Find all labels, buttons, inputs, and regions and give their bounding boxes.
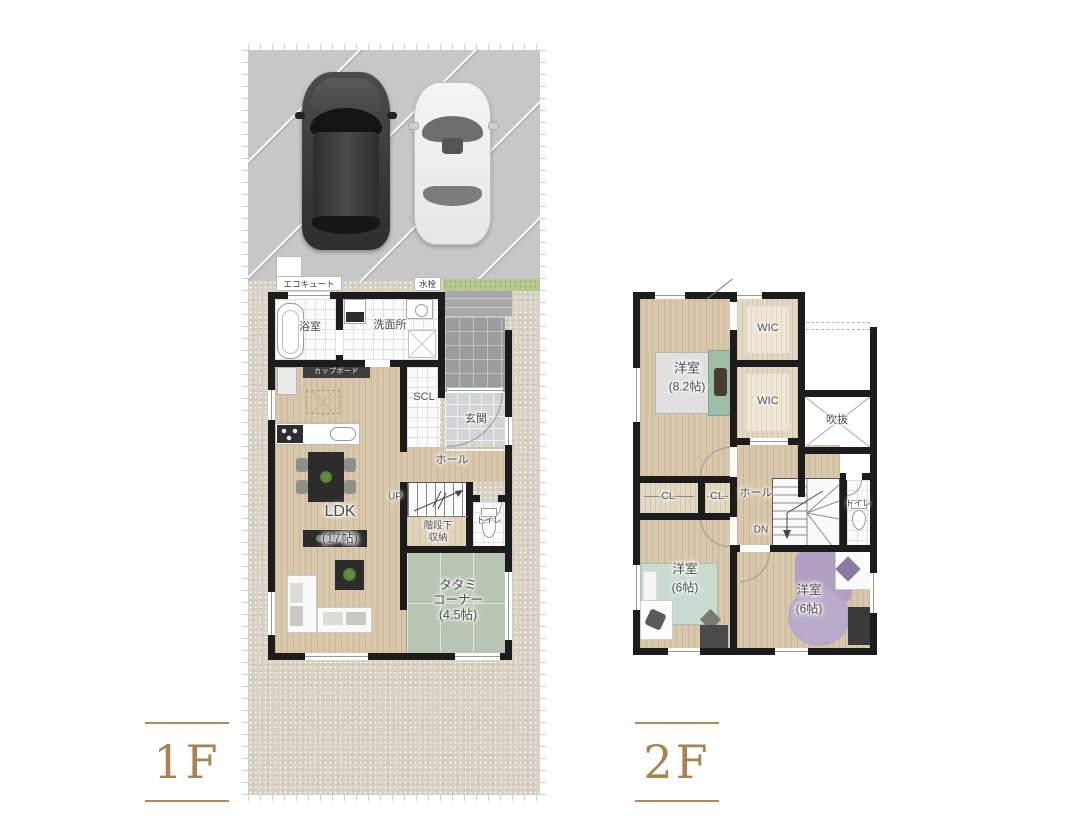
ldk-size-label: (17帖) (322, 532, 358, 547)
window (870, 573, 877, 613)
site-boundary-ticks-right (540, 50, 546, 795)
wall (840, 480, 847, 548)
ecocute-label-text: エコキュート (283, 278, 334, 290)
bedroom-main-size-label: (8.2帖) (669, 380, 706, 393)
tatami-size-label: (4.5帖) (439, 608, 477, 622)
toilet-label-1f: トイレ (476, 516, 502, 526)
sink-icon (330, 427, 356, 441)
hall-label-1f: ホール (436, 454, 469, 466)
sofa-cushion (323, 612, 343, 625)
wall (400, 367, 407, 452)
ecocute-unit (276, 256, 302, 277)
floor1-tag: 1F (145, 722, 229, 802)
stairs-2f-treads-icon (773, 479, 839, 547)
window (505, 572, 512, 640)
window (268, 592, 275, 635)
door-opening (365, 360, 390, 367)
floor1-tag-text: 1F (153, 735, 220, 789)
bathroom-label: 浴室 (299, 321, 321, 333)
void-label: 吹抜 (826, 414, 848, 426)
entrance-label: 玄関 (465, 413, 487, 425)
wic-lower-label: WIC (757, 395, 778, 407)
floor2-tag: 2F (635, 722, 719, 802)
stairs-up-label: UP (388, 491, 402, 502)
ecocute-label: エコキュート (276, 276, 342, 291)
roof-below-area (805, 299, 870, 390)
cupboard-label: カップボード (314, 366, 359, 376)
entrance-door-line (447, 388, 503, 393)
window (455, 653, 500, 660)
wall (788, 438, 805, 445)
stair-storage-divider (407, 516, 468, 517)
wall (698, 483, 705, 513)
site-boundary-ticks-bottom (248, 795, 540, 801)
stairs-1f-arrow-icon (408, 483, 469, 518)
wall (840, 473, 846, 480)
dining-table-icon (308, 452, 344, 502)
window (268, 390, 275, 420)
floor2-tag-text: 2F (643, 735, 710, 789)
washroom-label: 洗面所 (374, 319, 407, 331)
refrigerator-icon (277, 367, 297, 395)
bedroom-right-size-label: (6帖) (796, 602, 823, 615)
wall (438, 292, 445, 367)
plant-table-icon (335, 560, 364, 590)
parking-area (248, 50, 540, 281)
wall (275, 360, 445, 367)
pantry-dashed-box (306, 390, 340, 414)
bedroom-left-size-label: (6帖) (672, 581, 699, 594)
washer-pan-icon (408, 330, 436, 358)
wall (466, 502, 473, 548)
roof-dashed-line (806, 329, 870, 330)
wall (633, 476, 737, 483)
cabinet-right-icon (848, 607, 872, 645)
roof-dashed-line (806, 322, 870, 323)
wall (737, 360, 805, 367)
floorplan-page: エコキュート 水栓 カップボード (0, 0, 1070, 839)
under-stair-storage-label-2: 収納 (428, 534, 447, 545)
window (633, 368, 640, 422)
wall (798, 390, 877, 397)
sofa-cushion (346, 612, 366, 625)
stove-icon (277, 425, 303, 443)
closet-right-label: CL (710, 491, 723, 503)
wall (633, 513, 737, 520)
bedroom-left-name-label: 洋室 (672, 562, 697, 576)
window (655, 292, 685, 299)
door-opening (750, 438, 788, 445)
window (505, 417, 512, 445)
wall (498, 495, 512, 502)
toilet-label-2f: トイレ (845, 499, 871, 509)
scl-label: SCL (413, 391, 434, 403)
tatami-edge-line (406, 610, 407, 653)
sofa-cushion (290, 583, 303, 603)
hall-label-2f: ホール (740, 487, 773, 499)
approach-brick-tiles (445, 290, 512, 317)
door-opening (730, 447, 737, 477)
stairs-1f (407, 482, 468, 517)
stairs-2f (772, 478, 840, 548)
door-opening (730, 517, 737, 545)
window (737, 292, 762, 299)
dining-chair (344, 480, 356, 494)
wall (400, 546, 512, 553)
sofa-cushion (290, 606, 303, 626)
wic-upper-label: WIC (757, 322, 778, 334)
dining-chair (296, 458, 308, 472)
wall (466, 495, 480, 502)
tatami-name-label-1: タタミ (439, 578, 477, 592)
wall (400, 553, 407, 610)
wall (730, 545, 740, 552)
planting-strip (443, 279, 540, 291)
bedroom-main-name-label: 洋室 (674, 362, 700, 377)
car-white-icon (414, 82, 491, 245)
washstand-icon (406, 299, 433, 319)
window (775, 648, 808, 655)
bedroom-right-name-label: 洋室 (796, 583, 821, 597)
stairs-down-label: DN (754, 524, 768, 535)
dining-chair (344, 458, 356, 472)
closet-left-label: CL (661, 491, 674, 503)
desk-left-icon (700, 625, 728, 648)
under-stair-storage-label-1: 階段下 (424, 522, 453, 533)
scl-floor (407, 367, 440, 452)
entrance-step-line (445, 449, 505, 451)
wall (438, 367, 445, 398)
wall (737, 438, 750, 445)
ldk-name-label: LDK (324, 503, 355, 521)
porch-tiles (445, 317, 505, 392)
window (288, 292, 330, 299)
wall (805, 447, 877, 454)
tatami-name-label-2: コーナー (433, 593, 483, 607)
window (633, 565, 640, 610)
faucet-label-text: 水栓 (419, 278, 436, 290)
wall (862, 473, 877, 480)
car-dark-icon (302, 68, 390, 250)
vanity-icon (344, 299, 366, 324)
wall (770, 545, 877, 552)
dining-chair (296, 480, 308, 494)
faucet-label: 水栓 (414, 277, 441, 291)
door-opening (730, 302, 737, 330)
window (305, 653, 368, 660)
window (668, 648, 700, 655)
door-opening (336, 330, 343, 355)
